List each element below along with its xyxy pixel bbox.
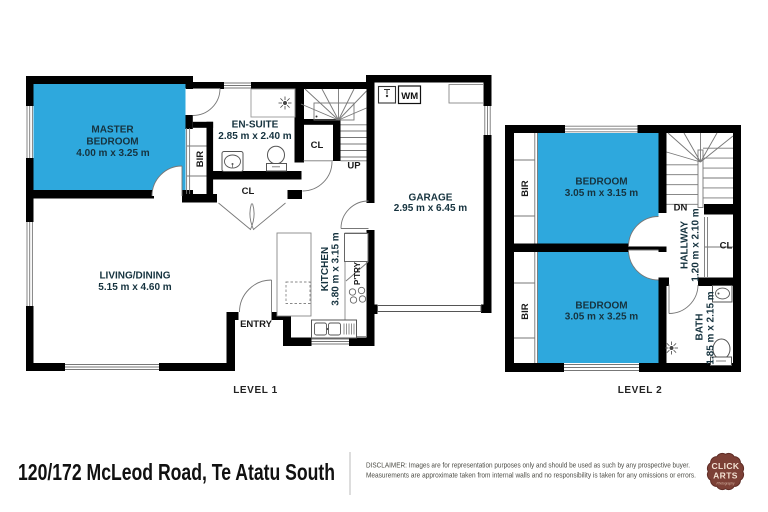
svg-text:DN: DN — [674, 203, 688, 214]
svg-text:120/172 McLeod Road, Te Atatu: 120/172 McLeod Road, Te Atatu South — [18, 459, 335, 485]
svg-text:2.95 m x 6.45 m: 2.95 m x 6.45 m — [394, 203, 467, 214]
svg-text:EN-SUITE: EN-SUITE — [232, 120, 279, 131]
svg-text:Measurements are approximate t: Measurements are approximate taken from … — [366, 473, 696, 480]
svg-text:3.05 m x 3.25 m: 3.05 m x 3.25 m — [565, 312, 638, 323]
svg-text:GARAGE: GARAGE — [409, 193, 453, 204]
svg-text:LIVING/DINING: LIVING/DINING — [99, 271, 170, 282]
svg-text:CLICK: CLICK — [712, 461, 740, 471]
svg-text:UP: UP — [347, 161, 361, 172]
svg-text:BIR: BIR — [195, 151, 206, 168]
svg-text:BIR: BIR — [520, 180, 531, 197]
svg-text:BIR: BIR — [520, 303, 531, 320]
svg-text:BEDROOM: BEDROOM — [86, 137, 138, 148]
svg-text:3.05 m x 3.15 m: 3.05 m x 3.15 m — [565, 188, 638, 199]
svg-text:WM: WM — [401, 91, 418, 102]
svg-text:4.00 m x 3.25 m: 4.00 m x 3.25 m — [76, 148, 149, 159]
svg-text:Photography: Photography — [716, 482, 734, 486]
svg-text:3.80 m x 3.15 m: 3.80 m x 3.15 m — [331, 232, 342, 305]
svg-text:ARTS: ARTS — [713, 471, 738, 481]
svg-text:KITCHEN: KITCHEN — [320, 247, 331, 291]
svg-text:P'TRY: P'TRY — [353, 261, 362, 285]
svg-text:CL: CL — [720, 241, 733, 252]
svg-text:2.85 m x 2.40 m: 2.85 m x 2.40 m — [218, 131, 291, 142]
svg-text:CL: CL — [242, 186, 255, 197]
svg-text:LEVEL 2: LEVEL 2 — [618, 385, 663, 396]
svg-text:ENTRY: ENTRY — [240, 319, 273, 330]
svg-text:BATH: BATH — [695, 313, 706, 340]
svg-text:BEDROOM: BEDROOM — [575, 301, 627, 312]
svg-text:BEDROOM: BEDROOM — [575, 177, 627, 188]
svg-text:5.15 m x 4.60 m: 5.15 m x 4.60 m — [98, 282, 171, 293]
svg-text:DISCLAIMER: Images are for rep: DISCLAIMER: Images are for representatio… — [366, 463, 690, 470]
svg-text:LEVEL 1: LEVEL 1 — [233, 385, 278, 396]
svg-text:HALLWAY: HALLWAY — [680, 221, 691, 269]
svg-text:1.85 m x 2.15 m: 1.85 m x 2.15 m — [706, 291, 717, 364]
svg-text:MASTER: MASTER — [91, 125, 134, 136]
svg-text:1.20 m x 2.10 m: 1.20 m x 2.10 m — [691, 208, 702, 281]
svg-text:CL: CL — [311, 140, 324, 151]
